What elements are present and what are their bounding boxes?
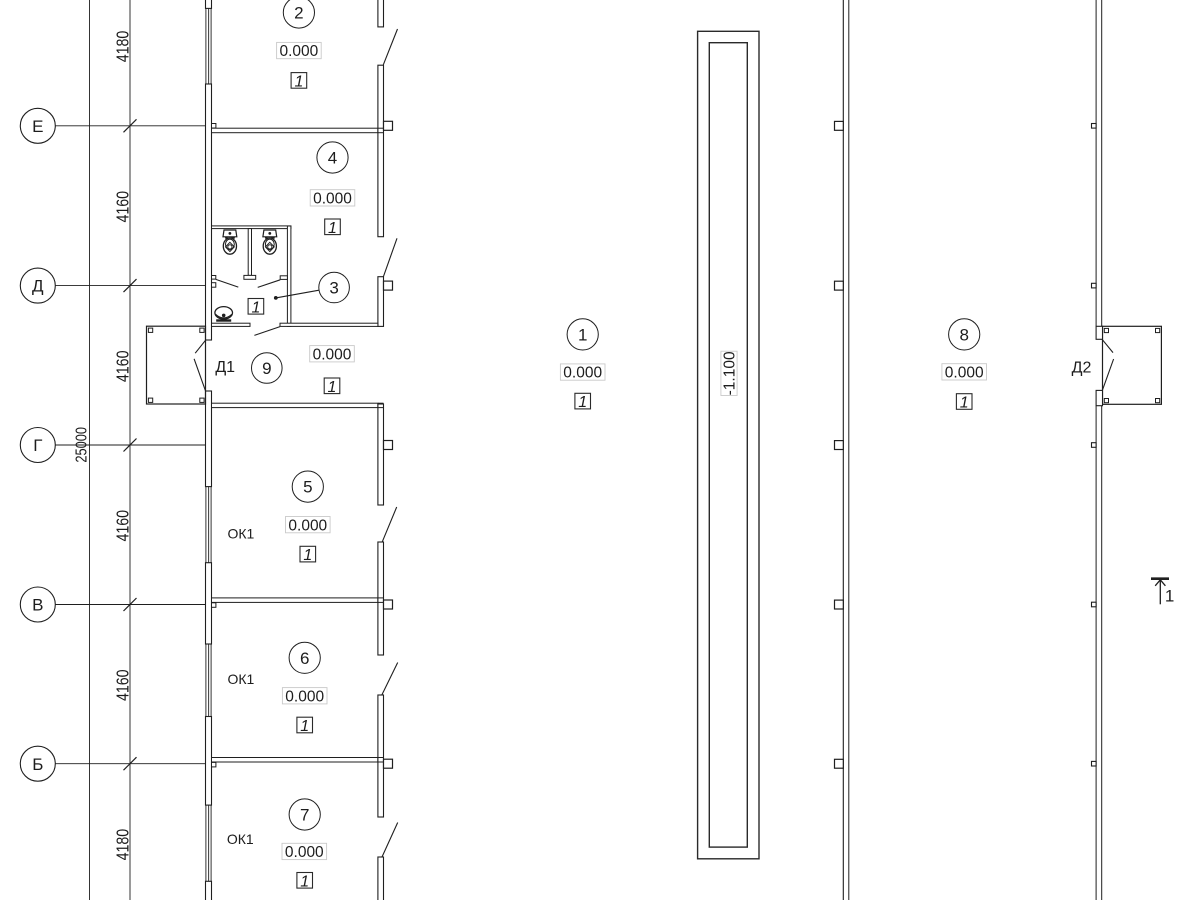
svg-text:3: 3 [329,279,338,298]
svg-text:Д: Д [32,277,44,296]
svg-text:0.000: 0.000 [563,365,602,382]
svg-text:4160: 4160 [112,350,132,382]
svg-text:4160: 4160 [112,191,132,223]
svg-text:1: 1 [578,394,587,411]
svg-text:5: 5 [303,478,312,497]
svg-text:1: 1 [578,326,587,345]
svg-text:4180: 4180 [112,30,132,62]
svg-text:0.000: 0.000 [313,190,352,207]
svg-text:В: В [32,596,43,615]
svg-text:4180: 4180 [112,829,132,861]
svg-text:1: 1 [960,394,969,411]
svg-text:7: 7 [300,806,309,825]
svg-text:8: 8 [959,326,968,345]
svg-text:-1.100: -1.100 [722,351,739,395]
svg-text:0.000: 0.000 [288,517,327,534]
svg-text:Е: Е [32,117,43,136]
svg-text:6: 6 [300,649,309,668]
svg-text:0.000: 0.000 [945,364,984,381]
svg-text:1: 1 [294,73,303,90]
svg-text:0.000: 0.000 [285,688,324,705]
svg-text:Г: Г [33,436,42,455]
svg-text:0.000: 0.000 [313,346,352,363]
svg-text:Д1: Д1 [215,359,235,376]
svg-text:1: 1 [303,547,312,564]
svg-text:1: 1 [328,379,337,396]
svg-text:9: 9 [262,359,271,378]
svg-text:1: 1 [300,873,309,890]
svg-text:2: 2 [294,4,303,23]
svg-text:ОК1: ОК1 [227,526,254,542]
svg-text:0.000: 0.000 [285,844,324,861]
svg-text:ОК1: ОК1 [227,671,254,687]
svg-text:Д2: Д2 [1072,360,1092,377]
svg-text:4: 4 [328,149,337,168]
svg-text:4160: 4160 [112,510,132,542]
svg-text:ОК1: ОК1 [227,831,254,847]
svg-text:1: 1 [328,220,337,237]
svg-text:1: 1 [300,718,309,735]
svg-text:Б: Б [32,755,43,774]
svg-text:0.000: 0.000 [280,43,319,60]
svg-text:1: 1 [1165,586,1174,605]
svg-text:4160: 4160 [112,669,132,701]
svg-text:1: 1 [251,299,260,316]
